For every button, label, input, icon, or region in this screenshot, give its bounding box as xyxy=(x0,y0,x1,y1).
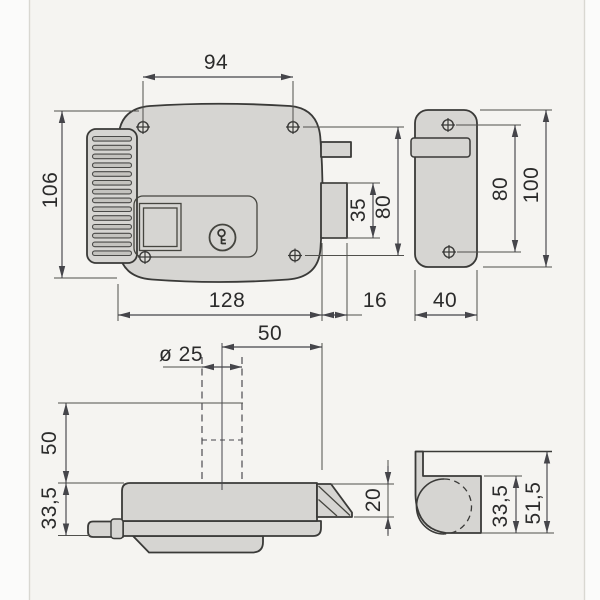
base-band xyxy=(122,521,321,536)
strike-plate xyxy=(415,110,477,267)
dim-label-cylinder-length: 50 xyxy=(38,431,61,455)
tab-collar xyxy=(111,519,123,539)
dim-label-strike-total-depth: 51,5 xyxy=(522,482,545,525)
dim-label-screw-height: 80 xyxy=(372,195,395,219)
latch-bolt xyxy=(321,183,347,238)
strike-slot xyxy=(411,138,470,157)
dim-label-body-width: 128 xyxy=(209,289,246,312)
dim-label-strike-screw-spacing: 80 xyxy=(489,177,512,201)
dim-label-body-height: 106 xyxy=(39,172,62,209)
strike-plate-front-view xyxy=(411,110,477,267)
dim-label-bolt-offset: 35 xyxy=(347,198,370,222)
dim-label-backset: 50 xyxy=(258,322,282,345)
dim-label-cylinder-diameter: ø 25 xyxy=(159,343,203,366)
dim-label-strike-width: 40 xyxy=(433,289,457,312)
dim-label-strike-inner-depth: 33,5 xyxy=(489,485,512,528)
dim-label-latch-depth: 20 xyxy=(362,488,385,512)
dim-label-strike-height: 100 xyxy=(520,167,543,204)
case-slab xyxy=(122,483,317,521)
fixing-tab xyxy=(321,142,351,157)
technical-drawing-page: 94 106 35 80 128 16 xyxy=(0,0,600,600)
cover-hump xyxy=(133,536,263,553)
dim-label-screw-span: 94 xyxy=(204,51,228,74)
dim-label-case-depth: 33,5 xyxy=(38,487,61,530)
lock-dimension-drawing: 94 106 35 80 128 16 xyxy=(0,0,600,600)
dim-label-bolt-throw: 16 xyxy=(363,289,387,312)
